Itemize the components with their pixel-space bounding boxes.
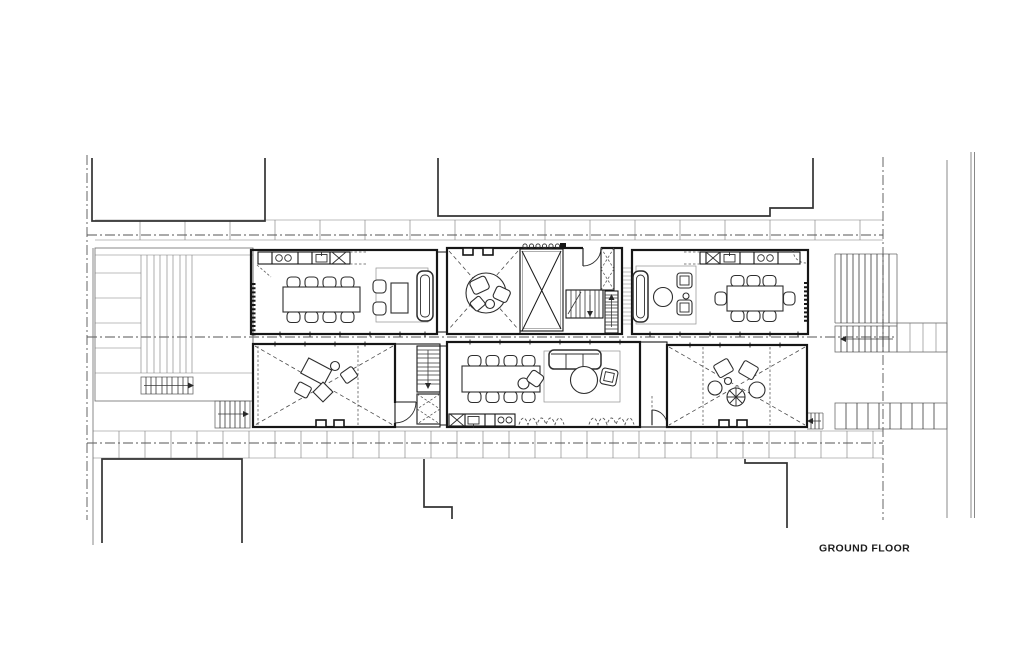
service-strip-west (395, 344, 440, 427)
stair-main (566, 290, 603, 318)
lounge-set-bottom-right (708, 358, 765, 406)
chair (486, 356, 499, 367)
neighbor-building-bottom-left (102, 459, 242, 543)
chair (731, 276, 744, 287)
stove-burner-icon (767, 255, 774, 262)
neighbor-building-top-left (92, 158, 265, 221)
wardrobe (601, 248, 614, 290)
round-side-table (486, 300, 495, 309)
neighbor-building-bottom-center (424, 459, 452, 519)
flue-block (463, 248, 473, 255)
lounge-circle-den (466, 273, 511, 313)
armchair (373, 280, 386, 293)
armchair (677, 273, 692, 288)
desk (301, 358, 332, 385)
dining-table (727, 286, 783, 311)
flue-block (719, 420, 729, 427)
desk-set-bottom-left (294, 358, 358, 402)
chair (323, 277, 336, 288)
chair (784, 292, 796, 305)
closet-bl (417, 394, 440, 424)
chair (747, 311, 760, 322)
chair (305, 312, 318, 323)
round-side-table (749, 382, 765, 398)
chair (468, 356, 481, 367)
furniture (283, 266, 795, 406)
chair (763, 311, 776, 322)
chair (522, 392, 535, 403)
entry-hall (566, 246, 618, 333)
chair (287, 312, 300, 323)
flue-block (334, 420, 344, 427)
dining-table (283, 287, 360, 312)
sofa (549, 350, 601, 369)
chair (468, 392, 481, 403)
kitchen-counter-tl (258, 252, 366, 264)
paving-grid-top (95, 220, 883, 240)
chair (323, 312, 336, 323)
service-strip-east (640, 342, 669, 427)
stove-burner-icon (276, 255, 283, 262)
chair (305, 277, 318, 288)
chair (763, 276, 776, 287)
column-block (560, 243, 566, 249)
terrace-stair-upper (141, 377, 194, 394)
chair (287, 277, 300, 288)
pouf (725, 378, 732, 385)
terrace-stair-lower (215, 401, 250, 428)
right-garden-stairs (807, 254, 947, 429)
neighbor-buildings (92, 158, 813, 543)
door-dashed-tl (257, 265, 271, 277)
garden-landing-east (897, 323, 947, 352)
stove-burner-icon (506, 417, 512, 423)
chair (486, 392, 499, 403)
deck-joint (623, 268, 631, 324)
sofa (633, 271, 648, 322)
flue-block (316, 420, 326, 427)
coffee-table (391, 283, 408, 313)
garden-stair-east-lower (835, 403, 947, 429)
round-side-table (331, 362, 340, 371)
drawing-title: GROUND FLOOR (819, 543, 910, 555)
neighbor-building-bottom-right (745, 459, 787, 528)
exterior-stair-southeast (807, 413, 823, 429)
sink-icon (468, 417, 479, 425)
dining-set-top-left (283, 277, 360, 323)
round-side-table (708, 381, 722, 395)
chair (731, 311, 744, 322)
chair (504, 392, 517, 403)
side-table (313, 382, 333, 402)
armchair (677, 300, 692, 315)
kitchen-counter-bc (449, 414, 515, 428)
sofa (417, 271, 433, 321)
stair-narrow (605, 291, 618, 333)
stove-burner-icon (285, 255, 292, 262)
round-table (654, 288, 673, 307)
armchair (373, 302, 386, 315)
chair (504, 356, 517, 367)
void-skylight (520, 243, 566, 331)
stove-burner-icon (498, 417, 504, 423)
living-set-top-right (633, 266, 696, 324)
chair (340, 366, 358, 384)
chair (341, 277, 354, 288)
chair (341, 312, 354, 323)
chair (294, 381, 312, 398)
kitchen-counter-tr (684, 252, 800, 264)
room-bottom-right (667, 343, 807, 428)
living-set-top-left (373, 268, 433, 322)
flue-block (737, 420, 747, 427)
dining-set-top-right (715, 276, 795, 322)
floor-plan-sheet: GROUND FLOOR (0, 0, 1024, 663)
neighbor-building-top-right (438, 158, 813, 216)
paving-grid-bottom (93, 431, 883, 458)
side-table (683, 293, 689, 299)
room-bottom-left (253, 342, 440, 428)
flue-block (483, 248, 493, 255)
garden-stair-east-mid (835, 326, 897, 352)
door-swing-entry (583, 248, 601, 266)
stove-burner-icon (758, 255, 765, 262)
round-table (571, 367, 598, 394)
chair (747, 276, 760, 287)
armchair (738, 360, 759, 380)
chair (715, 292, 727, 305)
armchair (600, 368, 619, 387)
stair-bl (417, 346, 440, 392)
left-terrace (95, 248, 253, 428)
chair (522, 356, 535, 367)
curtains-bc (519, 418, 634, 425)
door-swing-br (652, 410, 667, 425)
roof-cross-br (669, 347, 805, 425)
armchair (713, 358, 734, 378)
door-swing-bl (395, 402, 416, 423)
parasol-table (727, 388, 745, 406)
